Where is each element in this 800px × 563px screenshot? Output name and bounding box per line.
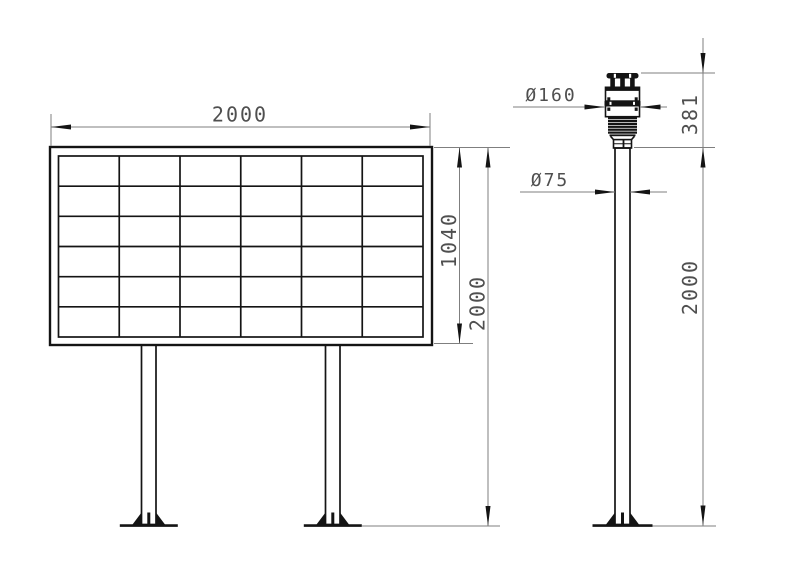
arrow-right-icon [410,125,430,130]
arrow-up-icon [457,148,462,168]
sensor-head [605,73,641,148]
ring-slit [633,102,635,105]
body-corner-mark [635,108,638,111]
arrow-up-icon [486,148,491,168]
arrow-up-icon [701,148,706,168]
pole-diameter-label: Ø75 [531,170,570,191]
pole-gusset-right [630,513,639,525]
dim-board-width: 2000 [51,103,430,147]
cap-slit [614,74,616,78]
left-leg-gusset-right [156,513,165,525]
board-overall-height-label: 2000 [466,275,490,331]
left-leg-post [142,345,157,525]
cap-post [610,79,615,88]
arrow-down-icon [701,53,706,73]
dim-pole-height: 2000 [678,259,706,526]
arrow-left-icon [630,190,650,195]
technical-drawing: 2000 1040 2000 [0,0,800,563]
cap-post [620,79,625,88]
board-width-label: 2000 [212,103,268,127]
right-leg-gusset-left [317,513,326,525]
technical-drawing-canvas: 2000 1040 2000 [0,0,800,563]
body-corner-mark [607,108,610,111]
dim-pole-diameter: Ø75 [520,170,667,195]
right-leg-gusset-right [340,513,349,525]
left-leg-gusset-left [133,513,142,525]
station-pole [615,148,630,525]
pole-height-label: 2000 [678,259,702,315]
sensor-lower-body [606,106,640,117]
body-corner-mark [607,97,610,100]
dim-board-overall-height: 2000 [466,148,491,527]
panel-height-label: 1040 [437,212,461,268]
dim-sensor-diameter: Ø160 [513,85,667,110]
sensor-diameter-label: Ø160 [525,85,576,106]
sensor-cap [607,73,639,79]
upper-body-band [606,87,640,91]
arrow-left-icon [51,125,71,130]
arrow-down-icon [457,324,462,344]
panel-grid [59,156,424,337]
arrow-left-icon [641,105,661,110]
board-right-leg [304,345,362,526]
arrow-right-icon [585,105,605,110]
arrow-down-icon [486,506,491,526]
body-corner-mark [635,97,638,100]
cap-slit [629,74,631,78]
dim-sensor-height: 381 [634,38,715,526]
pole-base [593,513,653,526]
board-left-leg [120,345,178,526]
arrow-right-icon [595,190,615,195]
ring-slit [610,102,612,105]
cap-post [630,79,635,88]
pole-gusset-left [606,513,615,525]
sensor-height-label: 381 [678,93,702,135]
arrow-down-icon [701,506,706,526]
radiation-shield-louvers [608,117,637,136]
display-board-view [50,147,500,526]
right-leg-post [326,345,341,525]
